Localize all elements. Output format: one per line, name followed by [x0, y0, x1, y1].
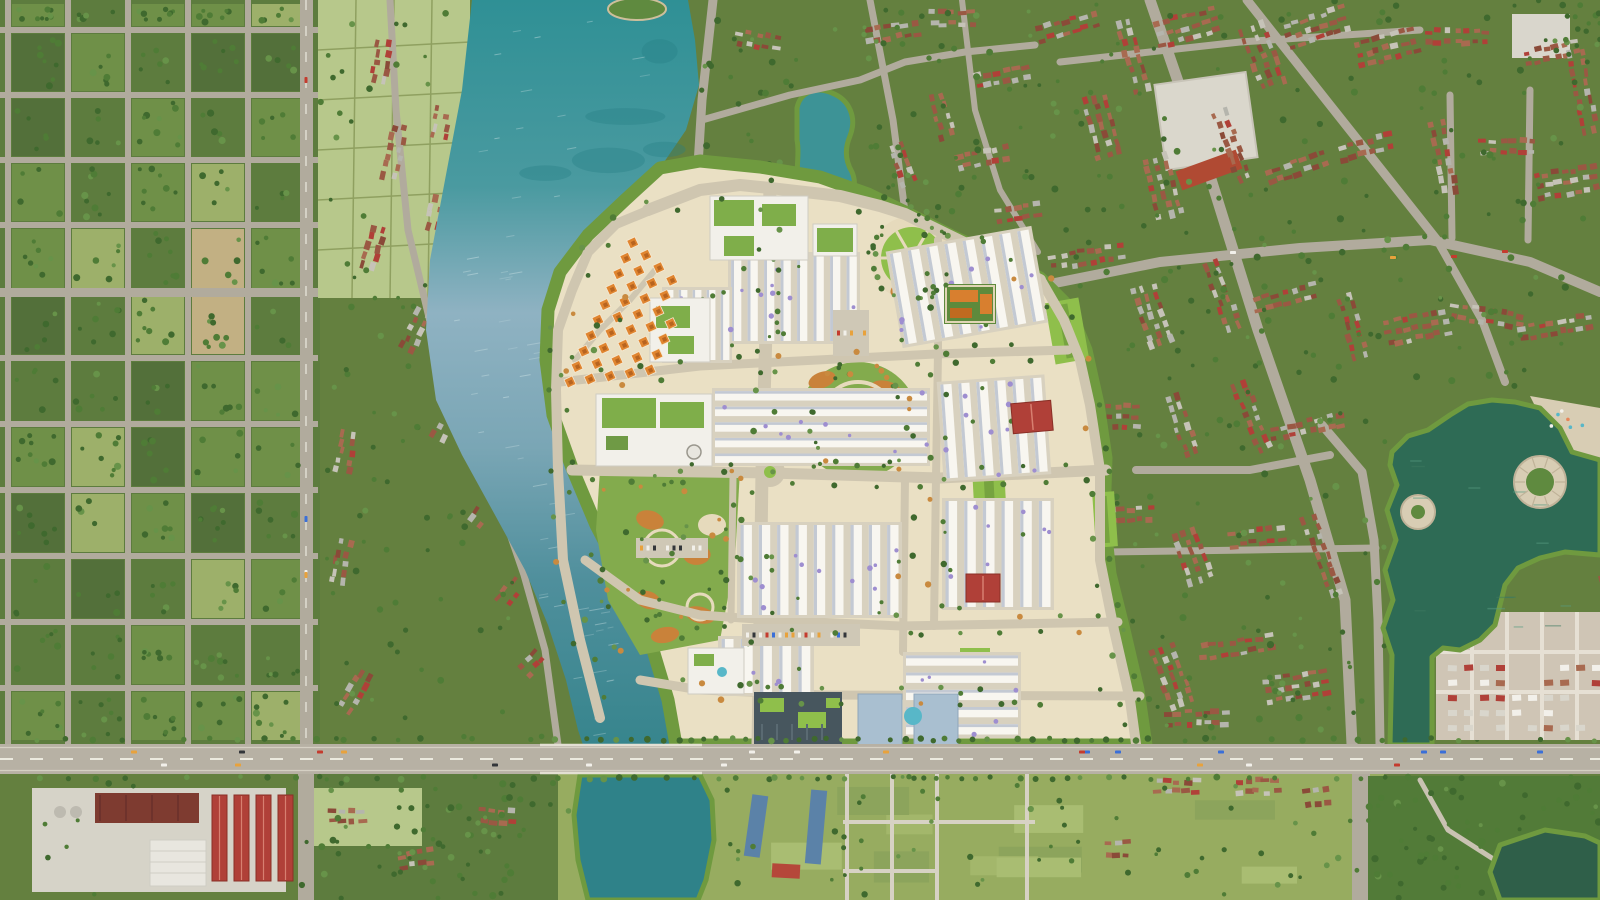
tree	[264, 774, 270, 780]
house	[1520, 137, 1528, 143]
strip-shadow	[906, 655, 1018, 658]
ornamental-tree	[710, 293, 715, 298]
tree	[409, 849, 415, 855]
tree	[153, 48, 159, 54]
house	[1444, 149, 1450, 156]
car	[1079, 751, 1085, 754]
tree	[334, 701, 339, 706]
house	[1106, 404, 1111, 408]
tree	[158, 173, 162, 177]
tree	[394, 824, 400, 830]
tree	[141, 201, 146, 206]
house	[1461, 40, 1470, 46]
tree	[664, 775, 670, 781]
tree	[1348, 819, 1353, 824]
tree	[218, 674, 224, 680]
tree	[1368, 332, 1373, 337]
tree	[91, 651, 95, 655]
tree	[491, 832, 497, 838]
tree	[73, 398, 79, 404]
tree	[403, 628, 408, 633]
tree	[1327, 418, 1332, 423]
tree	[1318, 277, 1323, 282]
house	[1123, 403, 1131, 408]
tree	[1060, 806, 1064, 810]
house	[358, 819, 367, 824]
tree	[372, 477, 377, 482]
ornamental-tree	[769, 313, 774, 318]
tree	[930, 284, 936, 290]
tree	[746, 133, 750, 137]
tree	[679, 615, 683, 619]
tree	[736, 101, 742, 107]
tree	[680, 677, 685, 682]
tree	[1212, 148, 1216, 152]
tree	[218, 68, 223, 73]
tree	[16, 457, 21, 462]
tree	[1309, 497, 1313, 501]
tree	[108, 653, 115, 660]
tree	[1103, 736, 1109, 742]
tree	[225, 9, 229, 13]
tree	[1332, 483, 1339, 490]
tree	[373, 296, 378, 301]
strip-shadow	[798, 639, 801, 693]
tree	[461, 877, 465, 881]
tree	[1161, 136, 1167, 142]
car	[1440, 751, 1446, 754]
tree	[919, 13, 925, 19]
tree	[430, 878, 436, 884]
tree	[348, 304, 355, 311]
tree	[1076, 630, 1081, 635]
tree	[171, 726, 176, 731]
house	[1480, 680, 1489, 686]
tree	[288, 256, 294, 262]
tree	[411, 304, 417, 310]
tree	[1028, 34, 1032, 38]
tree	[825, 371, 831, 377]
tree	[1339, 249, 1346, 256]
tree	[45, 855, 51, 861]
house	[1464, 725, 1473, 731]
tree	[292, 411, 299, 418]
house	[1430, 310, 1437, 317]
tree	[106, 732, 110, 736]
tree	[73, 274, 80, 281]
tree	[1434, 190, 1439, 195]
tree	[1418, 853, 1425, 860]
ornamental-tree	[721, 290, 726, 295]
tree	[280, 734, 284, 738]
tree	[23, 255, 28, 260]
house	[1267, 699, 1273, 705]
house	[1137, 516, 1142, 521]
house	[1116, 405, 1122, 410]
tree	[690, 462, 694, 466]
tree	[162, 525, 169, 532]
tree	[1476, 79, 1482, 85]
tree	[758, 370, 763, 375]
tree	[738, 556, 744, 562]
tree	[1562, 284, 1569, 291]
tree	[1063, 227, 1069, 233]
tree	[184, 775, 190, 781]
tree	[1366, 803, 1373, 810]
tree	[866, 250, 870, 254]
house	[1543, 55, 1550, 62]
tree	[866, 55, 872, 61]
tree	[728, 842, 732, 846]
tree	[175, 142, 180, 147]
southeast-pond	[1490, 830, 1600, 900]
green-roof	[660, 402, 704, 428]
strip-shadow	[906, 673, 1018, 676]
tree	[344, 825, 348, 829]
dome	[687, 445, 701, 459]
tree	[797, 737, 802, 742]
tree	[1533, 275, 1538, 280]
tree	[826, 775, 832, 781]
house	[1578, 164, 1587, 171]
strip-shadow	[946, 501, 949, 607]
house	[1501, 138, 1508, 143]
tree	[612, 644, 617, 649]
tree	[1175, 348, 1181, 354]
tree	[1585, 60, 1590, 65]
tree	[750, 844, 756, 850]
house	[1112, 424, 1118, 430]
tree	[905, 173, 911, 179]
tree	[14, 665, 21, 672]
tree	[162, 57, 169, 64]
tree	[688, 737, 694, 743]
tree	[1387, 872, 1393, 878]
tree	[800, 776, 805, 781]
house	[983, 72, 992, 78]
parked-car	[805, 633, 808, 638]
tree	[1399, 838, 1404, 843]
ornamental-tree	[877, 611, 880, 614]
tree	[1566, 52, 1571, 57]
tree	[172, 105, 179, 112]
ornamental-tree	[921, 678, 924, 681]
tree	[100, 407, 105, 412]
tree	[28, 260, 33, 265]
tree	[15, 378, 19, 382]
house	[1542, 173, 1549, 178]
house	[1568, 61, 1574, 67]
house	[1500, 150, 1507, 155]
tree	[1317, 418, 1323, 424]
tree	[1544, 38, 1548, 42]
house	[1583, 174, 1590, 179]
tree	[1495, 828, 1500, 833]
house	[443, 114, 449, 120]
tree	[150, 206, 155, 211]
tree	[736, 849, 740, 853]
tree	[214, 181, 219, 186]
ornamental-tree	[797, 265, 800, 268]
strip-shadow	[748, 255, 751, 341]
tree	[1446, 266, 1453, 273]
tree	[943, 436, 948, 441]
tree	[254, 704, 260, 710]
tree	[699, 680, 705, 686]
tree	[201, 9, 205, 13]
tree	[384, 547, 390, 553]
tree	[1287, 220, 1292, 225]
tree	[881, 194, 887, 200]
tree	[393, 61, 399, 67]
tree	[275, 384, 282, 391]
tree	[269, 672, 273, 676]
tree	[256, 445, 262, 451]
tree	[270, 116, 274, 120]
tree	[1559, 2, 1566, 9]
tree	[165, 384, 170, 389]
tree	[717, 518, 721, 522]
house	[1473, 39, 1478, 43]
strip-shadow	[715, 407, 927, 410]
house	[1545, 321, 1553, 327]
tree	[898, 10, 904, 16]
tree	[783, 738, 789, 744]
tree	[1247, 775, 1252, 780]
tree	[1405, 774, 1411, 780]
tree	[970, 737, 976, 743]
strip-shadow	[777, 525, 780, 615]
tree	[163, 730, 168, 735]
tree	[318, 843, 325, 850]
tree	[1109, 652, 1115, 658]
tree	[1481, 312, 1486, 317]
tree	[733, 775, 739, 781]
tree	[1432, 855, 1438, 861]
house	[993, 81, 999, 86]
tree	[1398, 278, 1403, 283]
house	[1575, 190, 1582, 195]
tree	[790, 481, 795, 486]
tree	[722, 624, 727, 629]
tree	[157, 655, 163, 661]
house	[986, 159, 992, 165]
tree	[1298, 252, 1305, 259]
car	[1421, 751, 1427, 754]
tree	[660, 580, 665, 585]
tree	[370, 698, 374, 702]
tree	[769, 554, 774, 559]
tree	[114, 590, 120, 596]
tree	[854, 463, 860, 469]
house	[1448, 725, 1457, 731]
tree	[1137, 91, 1141, 95]
tree	[55, 701, 61, 707]
house	[1276, 525, 1285, 531]
tree	[934, 344, 939, 349]
tree	[447, 515, 452, 520]
farm-lane	[935, 774, 939, 900]
tree	[1335, 855, 1341, 861]
street	[245, 0, 251, 745]
tree	[1089, 738, 1094, 743]
tree	[1559, 141, 1564, 146]
tree	[1256, 629, 1261, 634]
tree	[616, 774, 623, 781]
ornamental-tree	[770, 291, 775, 296]
ornamental-tree	[1042, 528, 1046, 532]
tree	[1413, 373, 1420, 380]
tree	[1449, 788, 1456, 795]
tree	[1218, 14, 1224, 20]
street	[0, 421, 318, 427]
tree	[26, 731, 31, 736]
tree	[26, 116, 30, 120]
main-road	[0, 744, 1600, 774]
tree	[49, 632, 53, 636]
tree	[1577, 104, 1584, 111]
tree	[211, 384, 216, 389]
tree	[1062, 823, 1067, 828]
beach-umbrella	[1569, 425, 1573, 429]
tree	[597, 577, 603, 583]
tree	[600, 600, 604, 604]
tree	[377, 606, 383, 612]
tree	[891, 774, 896, 779]
tree	[1366, 818, 1371, 823]
house	[1313, 787, 1320, 793]
tree	[42, 461, 48, 467]
tree	[275, 57, 281, 63]
tree	[279, 589, 285, 595]
tree	[1340, 629, 1345, 634]
tree	[1432, 159, 1437, 164]
house	[342, 561, 348, 567]
house	[1274, 788, 1282, 793]
tree	[91, 665, 96, 670]
tree	[837, 362, 842, 367]
car	[749, 751, 755, 754]
city-block	[192, 296, 244, 354]
aerial-render-stage	[0, 0, 1600, 900]
house	[1264, 791, 1270, 796]
tree	[1518, 827, 1522, 831]
parked-car	[818, 633, 821, 638]
parked-car	[785, 633, 788, 638]
ornamental-tree	[770, 568, 775, 573]
tree	[1090, 536, 1096, 542]
tree	[972, 175, 977, 180]
tree	[51, 77, 56, 82]
tree	[1196, 501, 1200, 505]
tree	[425, 804, 429, 808]
house	[1164, 712, 1172, 717]
city-block	[192, 362, 244, 420]
city-block	[132, 428, 184, 486]
tree	[1214, 271, 1219, 276]
street	[1528, 90, 1530, 240]
tree	[810, 410, 815, 415]
tree	[33, 368, 38, 373]
city-block	[192, 164, 244, 221]
tree	[475, 820, 480, 825]
house	[983, 148, 992, 154]
ornamental-tree	[867, 565, 873, 571]
tree	[915, 362, 920, 367]
tree	[839, 702, 844, 707]
tree	[734, 880, 740, 886]
tree	[161, 536, 165, 540]
tree	[772, 369, 777, 374]
house	[1122, 839, 1131, 844]
tree	[345, 371, 351, 377]
tree	[1051, 186, 1058, 193]
tree	[421, 774, 427, 780]
tree	[967, 854, 973, 860]
tree	[1088, 90, 1093, 95]
tree	[911, 776, 916, 781]
tree	[943, 392, 949, 398]
street	[0, 222, 318, 228]
tree	[17, 198, 23, 204]
tree	[570, 459, 576, 465]
tree	[1191, 364, 1195, 368]
tree	[1262, 243, 1266, 247]
tree	[506, 794, 513, 801]
tree	[732, 37, 737, 42]
water-shade	[519, 165, 571, 180]
tree	[1393, 2, 1399, 8]
tree	[870, 243, 876, 249]
house	[1425, 39, 1432, 45]
tree	[1298, 875, 1302, 879]
tree	[832, 828, 838, 834]
house	[1061, 262, 1067, 268]
tree	[1318, 726, 1324, 732]
house	[938, 23, 946, 27]
house	[1512, 694, 1521, 700]
tree	[27, 433, 32, 438]
tree	[1484, 14, 1491, 21]
tree	[1125, 870, 1131, 876]
tree	[1456, 883, 1461, 888]
house	[508, 807, 516, 813]
tree	[232, 279, 238, 285]
tree	[272, 671, 278, 677]
tree	[644, 617, 649, 622]
car	[1115, 751, 1121, 754]
street	[0, 157, 318, 163]
tree	[923, 287, 928, 292]
tree	[35, 738, 40, 743]
tree	[157, 61, 163, 67]
tree	[755, 736, 760, 741]
tree	[1348, 665, 1352, 669]
tree	[594, 322, 600, 328]
tree	[1155, 533, 1159, 537]
house	[1173, 781, 1179, 785]
tree	[93, 371, 100, 378]
house	[1256, 526, 1263, 532]
tree	[292, 577, 297, 582]
tree	[1493, 309, 1498, 314]
tree	[499, 780, 506, 787]
house	[1218, 641, 1224, 647]
tree	[1317, 121, 1323, 127]
tree	[1385, 16, 1391, 22]
tree	[349, 119, 354, 124]
parked-car	[792, 633, 795, 638]
